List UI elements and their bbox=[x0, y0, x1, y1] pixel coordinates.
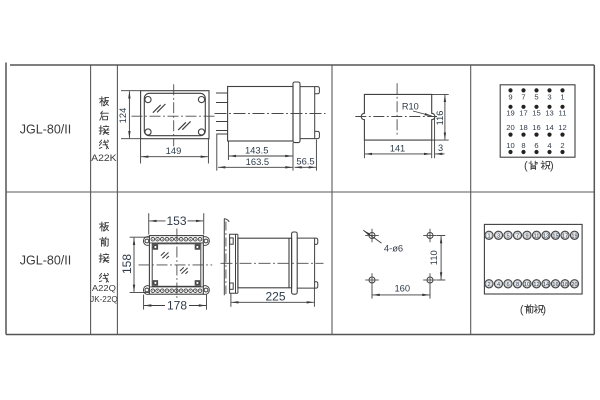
svg-text:11: 11 bbox=[534, 233, 540, 239]
svg-text:16: 16 bbox=[552, 282, 558, 288]
svg-text:R10: R10 bbox=[402, 102, 419, 112]
svg-text:2: 2 bbox=[560, 141, 564, 150]
svg-text:3: 3 bbox=[497, 233, 500, 239]
svg-text:8: 8 bbox=[516, 282, 519, 288]
svg-text:19: 19 bbox=[506, 109, 514, 118]
svg-text:160: 160 bbox=[394, 283, 410, 294]
svg-text:9: 9 bbox=[508, 92, 512, 101]
svg-text:(: ( bbox=[524, 160, 528, 172]
svg-text:9: 9 bbox=[525, 233, 528, 239]
svg-text:2: 2 bbox=[487, 282, 490, 288]
svg-text:3: 3 bbox=[438, 143, 443, 153]
svg-text:5: 5 bbox=[506, 233, 509, 239]
svg-text:110: 110 bbox=[428, 250, 439, 265]
svg-text:8: 8 bbox=[521, 141, 525, 150]
svg-text:4: 4 bbox=[497, 282, 500, 288]
svg-text:20: 20 bbox=[571, 282, 577, 288]
svg-text:16: 16 bbox=[532, 123, 540, 132]
svg-text:19: 19 bbox=[571, 233, 577, 239]
svg-text:7: 7 bbox=[516, 233, 519, 239]
svg-text:163.5: 163.5 bbox=[246, 156, 269, 167]
svg-text:225: 225 bbox=[265, 290, 285, 304]
svg-text:6: 6 bbox=[506, 282, 509, 288]
svg-text:JK-22Q: JK-22Q bbox=[90, 295, 118, 304]
svg-text:18: 18 bbox=[562, 282, 568, 288]
svg-text:): ) bbox=[542, 304, 546, 316]
svg-text:17: 17 bbox=[562, 233, 568, 239]
svg-text:14: 14 bbox=[543, 282, 549, 288]
svg-text:5: 5 bbox=[534, 92, 538, 101]
svg-text:153: 153 bbox=[166, 214, 186, 228]
svg-text:1: 1 bbox=[487, 233, 490, 239]
svg-text:(: ( bbox=[520, 304, 524, 316]
svg-text:17: 17 bbox=[519, 109, 527, 118]
svg-text:13: 13 bbox=[543, 233, 549, 239]
svg-text:116: 116 bbox=[435, 111, 445, 126]
svg-text:18: 18 bbox=[519, 123, 527, 132]
svg-text:12: 12 bbox=[533, 282, 539, 288]
svg-text:11: 11 bbox=[559, 109, 567, 118]
svg-text:15: 15 bbox=[552, 233, 558, 239]
svg-text:178: 178 bbox=[167, 299, 187, 313]
svg-text:56.5: 56.5 bbox=[296, 156, 314, 167]
svg-text:10: 10 bbox=[506, 141, 514, 150]
svg-text:4-ø6: 4-ø6 bbox=[384, 243, 403, 254]
svg-text:143.5: 143.5 bbox=[245, 144, 268, 155]
svg-text:141: 141 bbox=[390, 144, 405, 154]
svg-text:3: 3 bbox=[547, 92, 551, 101]
svg-text:20: 20 bbox=[506, 123, 514, 132]
svg-text:1: 1 bbox=[560, 92, 564, 101]
svg-text:): ) bbox=[550, 160, 554, 172]
svg-text:149: 149 bbox=[166, 145, 182, 156]
svg-text:7: 7 bbox=[521, 92, 525, 101]
svg-text:6: 6 bbox=[534, 141, 538, 150]
svg-text:124: 124 bbox=[117, 108, 128, 124]
svg-text:15: 15 bbox=[532, 109, 540, 118]
svg-text:10: 10 bbox=[524, 282, 530, 288]
svg-text:JGL-80/II: JGL-80/II bbox=[20, 254, 71, 268]
svg-text:158: 158 bbox=[120, 254, 134, 274]
svg-text:4: 4 bbox=[547, 141, 551, 150]
svg-text:14: 14 bbox=[545, 123, 553, 132]
svg-text:12: 12 bbox=[558, 123, 566, 132]
svg-text:JGL-80/II: JGL-80/II bbox=[20, 123, 71, 137]
svg-text:13: 13 bbox=[545, 109, 553, 118]
svg-text:A22K: A22K bbox=[91, 153, 117, 163]
svg-text:A22Q: A22Q bbox=[92, 284, 116, 293]
